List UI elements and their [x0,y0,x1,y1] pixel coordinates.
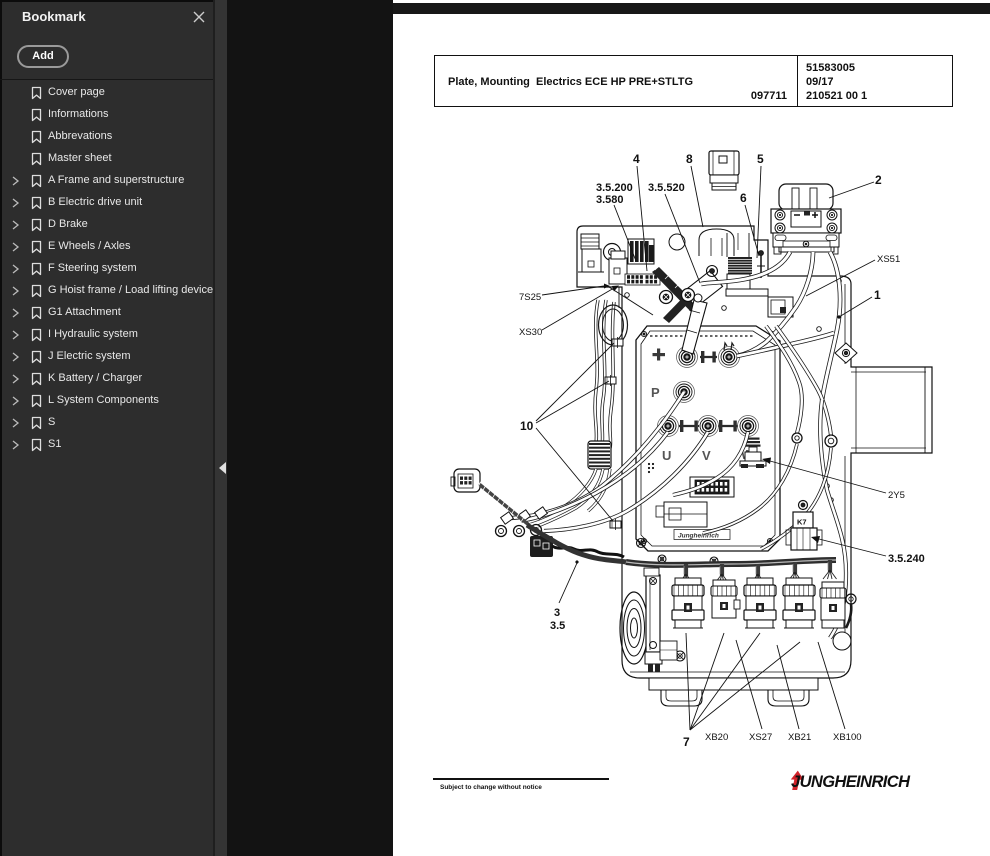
svg-text:V: V [702,448,711,463]
svg-text:XS51: XS51 [877,254,900,265]
svg-text:XB100: XB100 [833,732,862,743]
svg-text:XS30: XS30 [519,327,542,338]
svg-text:3.5.200: 3.5.200 [596,182,633,194]
svg-text:8: 8 [686,152,693,166]
svg-text:4: 4 [633,152,640,166]
svg-text:2: 2 [875,173,882,187]
svg-text:3.580: 3.580 [596,194,624,206]
svg-text:3: 3 [554,607,560,619]
svg-text:2Y5: 2Y5 [888,490,905,501]
svg-text:XB21: XB21 [788,732,811,743]
svg-text:1: 1 [874,288,881,302]
svg-text:3.5: 3.5 [550,620,565,632]
svg-text:XB20: XB20 [705,732,728,743]
svg-text:10: 10 [520,419,534,433]
svg-text:XS27: XS27 [749,732,772,743]
svg-text:U: U [662,448,671,463]
svg-text:Jungheinrich: Jungheinrich [678,533,719,540]
svg-text:6: 6 [740,191,747,205]
svg-text:3.5.240: 3.5.240 [888,553,925,565]
svg-text:7S25: 7S25 [519,292,541,303]
svg-text:K7: K7 [797,518,807,527]
svg-text:5: 5 [757,152,764,166]
svg-text:7: 7 [683,735,690,749]
svg-text:3.5.520: 3.5.520 [648,182,685,194]
svg-text:P: P [651,385,660,400]
